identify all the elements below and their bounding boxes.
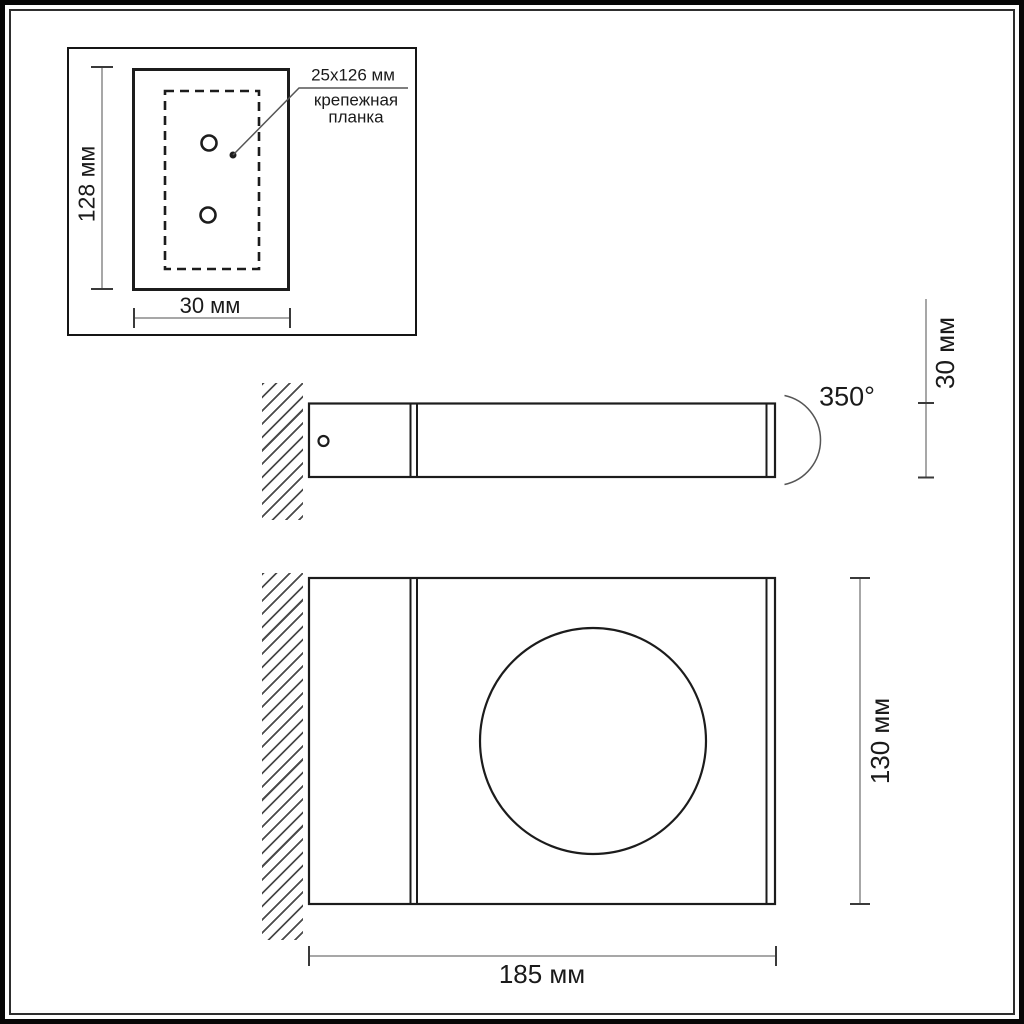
rotation-angle-label: 350° bbox=[819, 384, 875, 411]
fixture-depth-label: 30 мм bbox=[932, 317, 958, 389]
mounting-plate-outline bbox=[134, 70, 289, 290]
mounting-strap-dashed-outline bbox=[165, 91, 259, 269]
screw-hole-top bbox=[202, 136, 217, 151]
fixture-side-body bbox=[309, 404, 775, 478]
strap-name-label-line2: планка bbox=[328, 109, 383, 126]
technical-drawing: 128 мм 30 мм 25x126 мм крепежная планка … bbox=[0, 0, 1024, 1024]
fixture-front-view bbox=[309, 578, 870, 966]
screw-hole-bottom bbox=[201, 208, 216, 223]
strap-name-label-line1: крепежная bbox=[314, 92, 398, 109]
rotation-arc bbox=[785, 396, 821, 485]
plate-height-label: 128 мм bbox=[76, 146, 99, 222]
strap-size-label: 25x126 мм bbox=[311, 67, 395, 84]
plate-width-label: 30 мм bbox=[180, 295, 241, 317]
fixture-height-label: 130 мм bbox=[867, 698, 893, 784]
fixture-width-label: 185 мм bbox=[499, 961, 585, 987]
drawing-linework bbox=[0, 0, 1024, 1024]
